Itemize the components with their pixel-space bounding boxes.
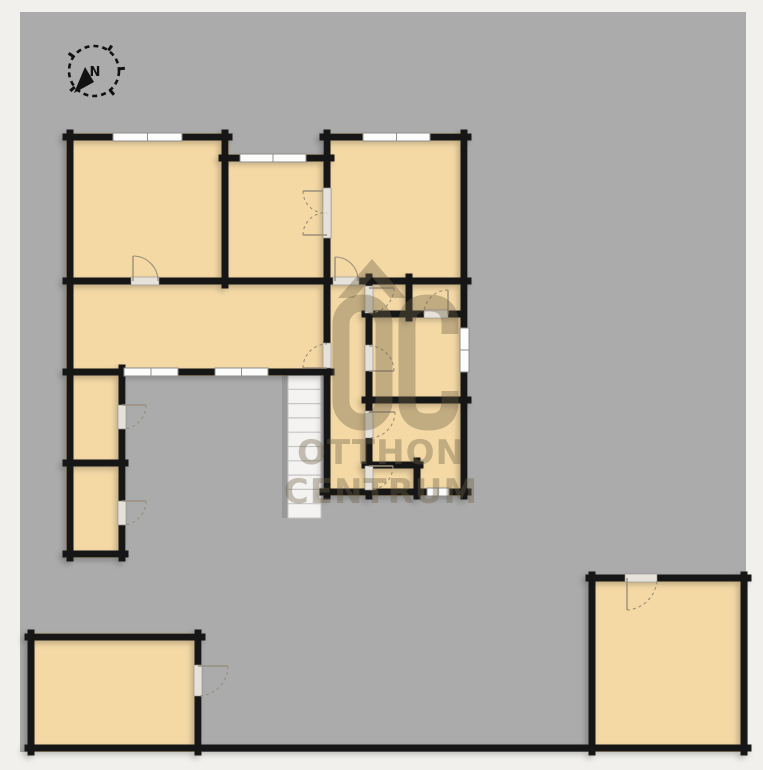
- room: [222, 154, 331, 285]
- door-gap: [118, 405, 126, 429]
- floorplan-image: OTTHON CENTRUM N: [0, 0, 763, 770]
- door-gap: [323, 343, 331, 368]
- door-gap: [194, 665, 202, 696]
- watermark-line1: OTTHON: [297, 433, 465, 473]
- floorplan-svg: OTTHON CENTRUM N: [0, 0, 763, 770]
- room: [66, 133, 229, 285]
- room: [323, 133, 468, 285]
- compass-label: N: [90, 65, 101, 80]
- compass-tick: [119, 68, 125, 69]
- door-gap: [118, 501, 126, 525]
- watermark-line2: CENTRUM: [284, 472, 478, 512]
- room: [589, 575, 748, 752]
- door-gap: [625, 574, 657, 582]
- door-gap: [131, 277, 159, 285]
- door-gap: [365, 345, 373, 371]
- room: [28, 633, 202, 752]
- room: [66, 277, 331, 376]
